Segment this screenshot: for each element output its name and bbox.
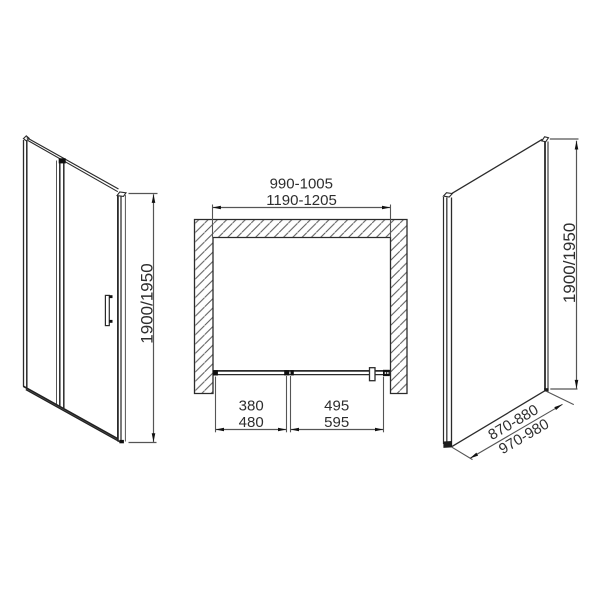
svg-text:595: 595: [324, 414, 349, 431]
svg-text:480: 480: [239, 414, 264, 431]
svg-text:990-1005: 990-1005: [270, 176, 333, 193]
svg-text:1190-1205: 1190-1205: [266, 192, 337, 209]
svg-text:380: 380: [239, 398, 264, 415]
svg-text:1900/1950: 1900/1950: [560, 223, 579, 303]
svg-text:1900/1950: 1900/1950: [137, 263, 156, 343]
svg-text:495: 495: [324, 398, 349, 415]
